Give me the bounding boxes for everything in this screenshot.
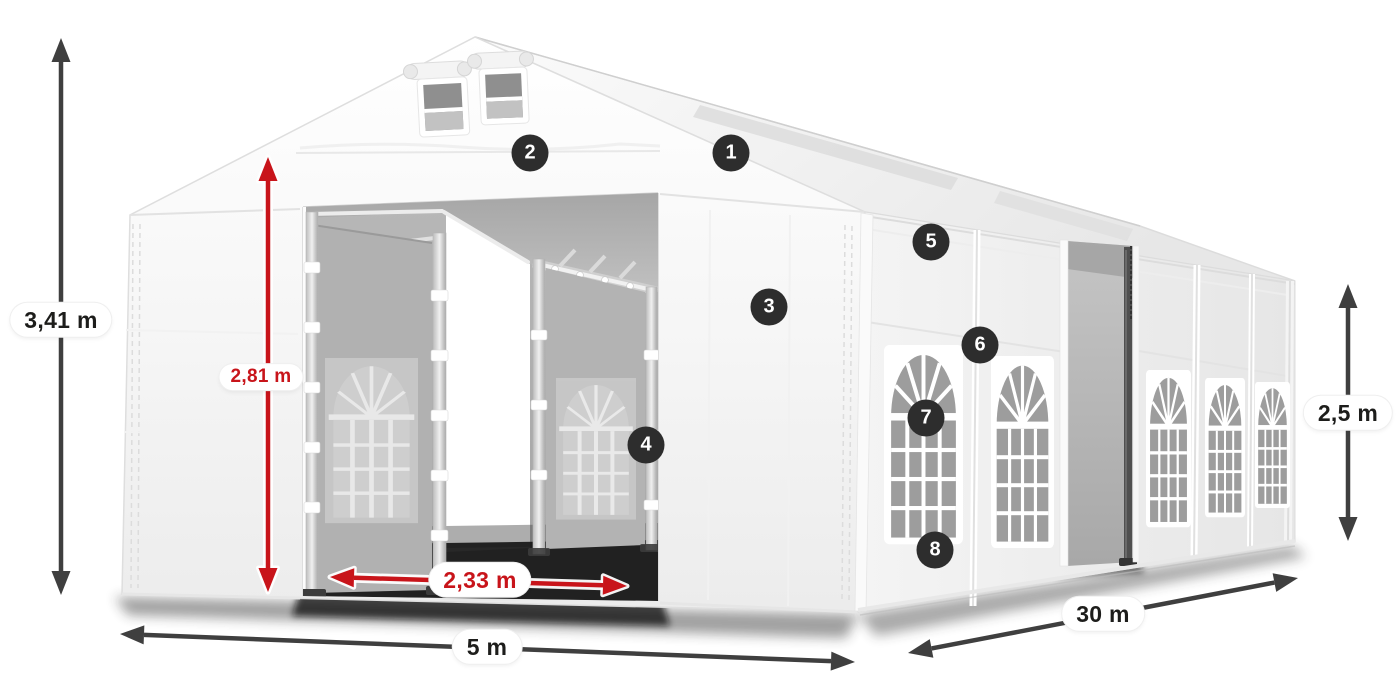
side-door-gap (1060, 240, 1139, 566)
side-window-2 (991, 356, 1054, 548)
callout-badge-7[interactable]: 7 (908, 400, 945, 437)
tent-illustration (0, 0, 1400, 700)
side-window-1 (884, 345, 963, 544)
dimension-label-side-height: 2,5 m (1304, 396, 1392, 430)
callout-badge-3[interactable]: 3 (751, 289, 788, 326)
side-window-5 (1255, 382, 1290, 508)
callout-badge-4[interactable]: 4 (628, 427, 665, 464)
side-window-4 (1205, 378, 1245, 517)
callout-badge-5[interactable]: 5 (913, 224, 950, 261)
callout-badge-6[interactable]: 6 (962, 327, 999, 364)
callout-badge-1[interactable]: 1 (713, 135, 750, 172)
dimension-label-side-length: 30 m (1062, 597, 1144, 631)
dimension-label-door-height: 2,81 m (220, 364, 303, 390)
callout-badge-2[interactable]: 2 (512, 135, 549, 172)
door-opening-interior (293, 190, 662, 605)
see-through-gap (446, 212, 530, 552)
tent-dimensions-diagram: 3,41 m 2,81 m 2,33 m 5 m 30 m 2,5 m 1 2 … (0, 0, 1400, 700)
dimension-label-front-width: 5 m (453, 630, 522, 664)
inner-door-frame (528, 250, 661, 556)
left-door-panel (313, 225, 432, 593)
dimension-label-total-height: 3,41 m (10, 303, 111, 337)
side-window-3 (1146, 370, 1191, 527)
callout-badge-8[interactable]: 8 (917, 532, 954, 569)
dimension-label-door-width: 2,33 m (429, 563, 530, 597)
